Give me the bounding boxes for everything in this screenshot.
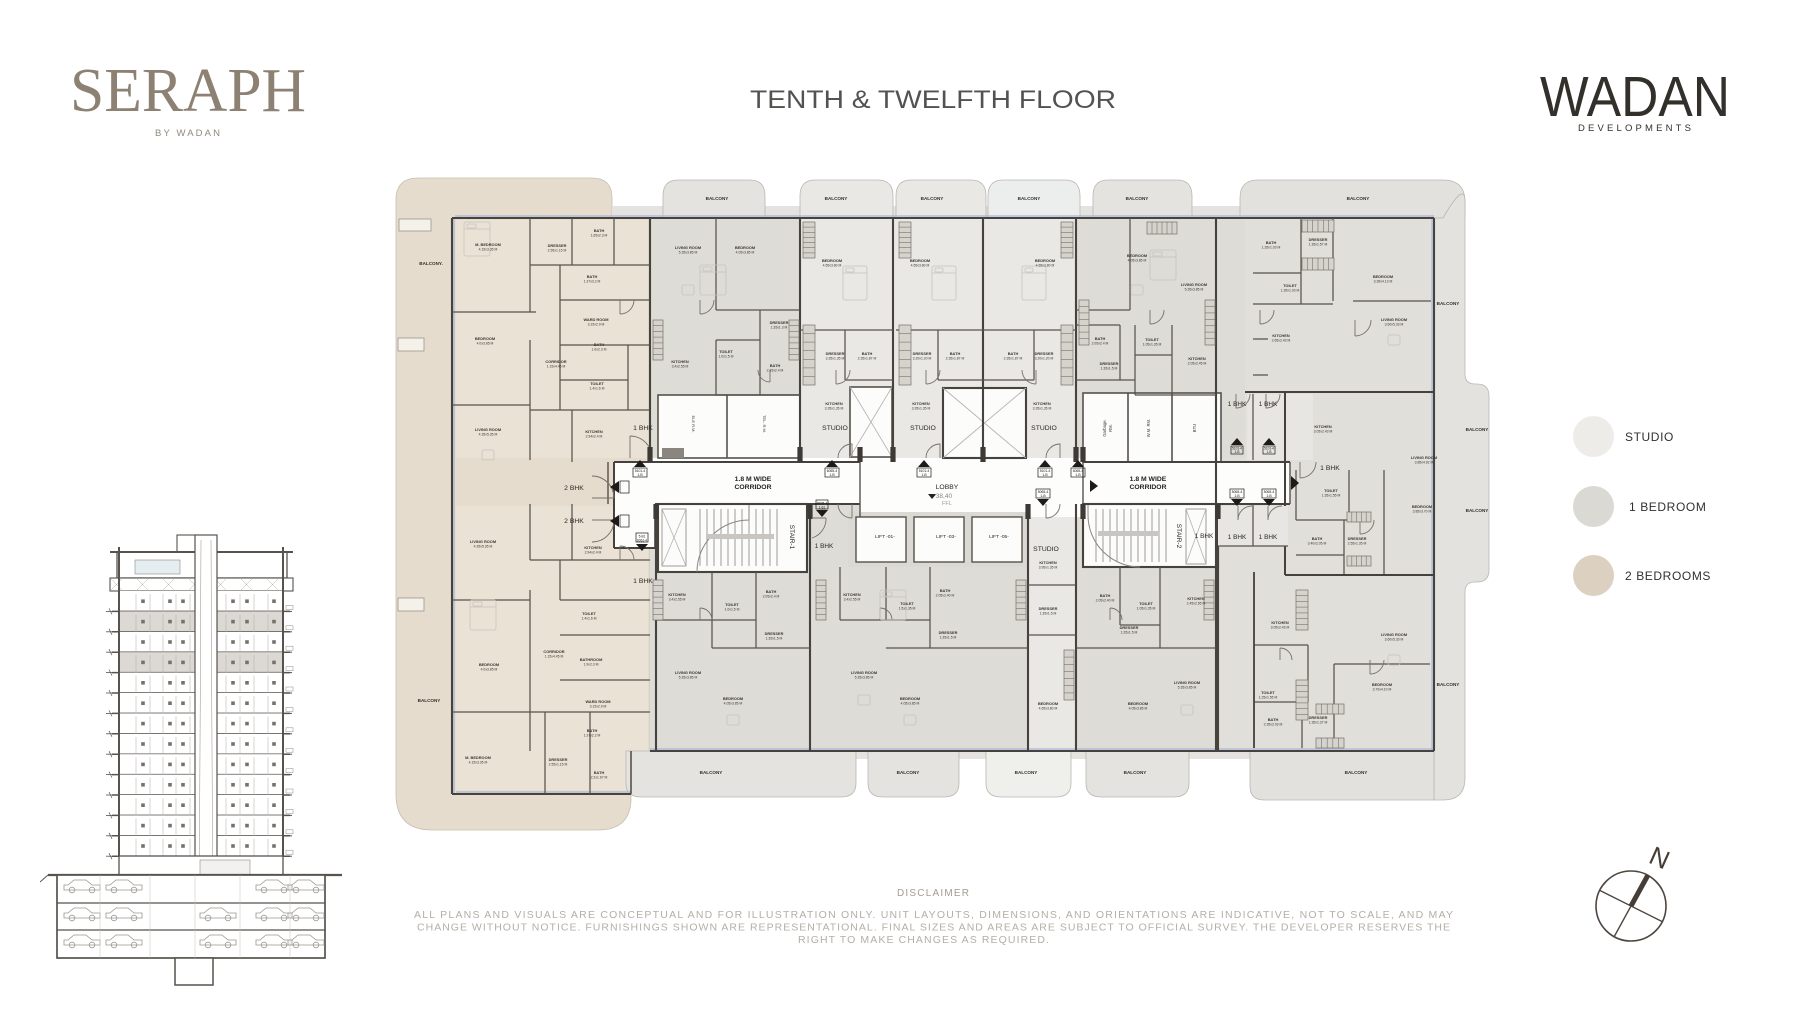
svg-text:STUDIO: STUDIO xyxy=(910,425,936,432)
svg-text:2.35x1.87 M: 2.35x1.87 M xyxy=(858,357,877,361)
svg-text:BATH: BATH xyxy=(594,228,605,233)
svg-text:2.05x2.4 M: 2.05x2.4 M xyxy=(1092,342,1109,346)
svg-text:BEDROOM: BEDROOM xyxy=(723,696,743,701)
svg-text:1-B: 1-B xyxy=(1040,494,1046,498)
svg-text:1.35x1.5 M: 1.35x1.5 M xyxy=(1040,612,1057,616)
svg-text:1-B: 1-B xyxy=(1042,473,1048,477)
svg-text:1-B: 1-B xyxy=(1267,450,1272,454)
svg-text:1-B: 1-B xyxy=(829,473,835,477)
svg-text:4.65x3.80 M: 4.65x3.80 M xyxy=(1036,264,1055,268)
svg-text:BATH: BATH xyxy=(1095,336,1106,341)
svg-text:BALCONY: BALCONY xyxy=(897,770,920,775)
svg-text:BALCONY: BALCONY xyxy=(1466,508,1489,513)
svg-text:3.15x2.9 M: 3.15x2.9 M xyxy=(588,323,605,327)
svg-text:KITCHEN: KITCHEN xyxy=(671,359,688,364)
svg-text:BATH: BATH xyxy=(862,351,873,356)
svg-text:WARD ROOM: WARD ROOM xyxy=(583,317,608,322)
svg-text:LIVING ROOM: LIVING ROOM xyxy=(675,245,701,250)
svg-text:2.2x1.67 M: 2.2x1.67 M xyxy=(591,776,608,780)
svg-text:3.70x4.10 M: 3.70x4.10 M xyxy=(1373,688,1392,692)
svg-text:Garbage.: Garbage. xyxy=(1102,419,1107,436)
svg-text:1 BHK: 1 BHK xyxy=(1228,401,1247,408)
svg-text:BATH: BATH xyxy=(594,342,605,347)
svg-text:TEL. R.M.: TEL. R.M. xyxy=(762,415,767,433)
svg-text:3.35x1.35 M: 3.35x1.35 M xyxy=(912,407,931,411)
svg-text:BALCONY: BALCONY xyxy=(1345,770,1368,775)
svg-text:LIVING ROOM: LIVING ROOM xyxy=(475,427,501,432)
svg-text:1 BHK: 1 BHK xyxy=(1320,465,1340,472)
svg-text:KITCHEN: KITCHEN xyxy=(1188,356,1205,361)
svg-text:BATHROOM: BATHROOM xyxy=(580,657,603,662)
svg-text:LOBBY: LOBBY xyxy=(936,484,959,491)
svg-text:BALCONY: BALCONY xyxy=(1466,427,1489,432)
svg-text:DRESSER: DRESSER xyxy=(1120,625,1139,630)
svg-text:5.35x3.85 M: 5.35x3.85 M xyxy=(679,676,698,680)
svg-text:BALCONY: BALCONY xyxy=(700,770,723,775)
svg-text:1.05x1.35 M: 1.05x1.35 M xyxy=(1137,607,1156,611)
svg-text:1.65x2.3 M: 1.65x2.3 M xyxy=(591,234,608,238)
svg-text:4.65x3.80 M: 4.65x3.80 M xyxy=(911,264,930,268)
svg-text:BALCONY: BALCONY xyxy=(1018,196,1041,201)
svg-text:TOILET: TOILET xyxy=(1145,337,1159,342)
svg-text:BALCONY: BALCONY xyxy=(1015,770,1038,775)
svg-text:DRESSER: DRESSER xyxy=(770,320,789,325)
svg-text:BEDROOM: BEDROOM xyxy=(1035,258,1055,263)
svg-text:TOILET: TOILET xyxy=(1324,488,1338,493)
svg-text:BATH: BATH xyxy=(587,728,598,733)
svg-text:4.05x3.85 M: 4.05x3.85 M xyxy=(736,251,755,255)
svg-text:3.35x1.35 M: 3.35x1.35 M xyxy=(825,407,844,411)
svg-text:4.65x3.80 M: 4.65x3.80 M xyxy=(823,264,842,268)
svg-text:RM.: RM. xyxy=(1108,424,1113,432)
svg-text:KITCHEN: KITCHEN xyxy=(1033,401,1050,406)
svg-text:BATH: BATH xyxy=(766,589,777,594)
svg-text:BATH: BATH xyxy=(587,274,598,279)
svg-text:TOILET: TOILET xyxy=(719,349,733,354)
svg-text:3.60x5.33 M: 3.60x5.33 M xyxy=(1385,323,1404,327)
svg-text:3.15x2.9 M: 3.15x2.9 M xyxy=(590,705,607,709)
svg-text:DRESSER: DRESSER xyxy=(1348,536,1367,541)
svg-text:CORRIDOR: CORRIDOR xyxy=(734,484,771,491)
svg-text:4.05x3.85 M: 4.05x3.85 M xyxy=(1128,259,1147,263)
svg-text:1-B: 1-B xyxy=(1235,450,1240,454)
svg-text:BEDROOM: BEDROOM xyxy=(1372,682,1392,687)
svg-text:ELE R.M.: ELE R.M. xyxy=(691,415,696,432)
svg-text:BATH: BATH xyxy=(940,588,951,593)
svg-text:BATH: BATH xyxy=(1008,351,1019,356)
svg-text:BALCONY: BALCONY xyxy=(1347,196,1370,201)
svg-text:1-B: 1-B xyxy=(1234,494,1240,498)
svg-text:STUDIO: STUDIO xyxy=(1033,546,1059,553)
svg-text:TOILET: TOILET xyxy=(582,611,596,616)
svg-text:2.05x2.40 M: 2.05x2.40 M xyxy=(936,594,955,598)
svg-text:1 BHK: 1 BHK xyxy=(1195,533,1214,540)
svg-text:DRESSER: DRESSER xyxy=(549,757,568,762)
svg-text:1 BHK: 1 BHK xyxy=(633,425,653,432)
svg-text:DRESSER: DRESSER xyxy=(1309,715,1328,720)
svg-text:BEDROOM: BEDROOM xyxy=(910,258,930,263)
svg-text:1-B: 1-B xyxy=(637,473,643,477)
svg-text:M. BEDROOM: M. BEDROOM xyxy=(475,242,501,247)
svg-text:KITCHEN: KITCHEN xyxy=(1271,620,1288,625)
svg-text:2.55x1.15 M: 2.55x1.15 M xyxy=(548,249,567,253)
svg-text:KITCHEN: KITCHEN xyxy=(584,545,601,550)
svg-text:BALCONY: BALCONY xyxy=(1124,770,1147,775)
svg-text:BEDROOM: BEDROOM xyxy=(1127,253,1147,258)
svg-text:2.05x2.40 M: 2.05x2.40 M xyxy=(1096,599,1115,603)
svg-text:CORRIDOR: CORRIDOR xyxy=(543,649,564,654)
svg-text:3.05x2.43 M: 3.05x2.43 M xyxy=(1271,626,1290,630)
svg-text:3.20x1.20 M: 3.20x1.20 M xyxy=(1035,357,1054,361)
svg-text:STUDIO: STUDIO xyxy=(822,425,848,432)
svg-text:TOILET: TOILET xyxy=(900,601,914,606)
svg-text:4.65x3.80 M: 4.65x3.80 M xyxy=(1039,707,1058,711)
svg-text:DRESSER: DRESSER xyxy=(1100,361,1119,366)
svg-text:KITCHEN: KITCHEN xyxy=(825,401,842,406)
svg-text:4.35x5.35 M: 4.35x5.35 M xyxy=(474,545,493,549)
svg-text:BATH: BATH xyxy=(770,363,781,368)
svg-text:1-B: 1-B xyxy=(1075,473,1081,477)
svg-text:W.M. RM.: W.M. RM. xyxy=(1146,419,1151,437)
svg-text:BATH: BATH xyxy=(950,351,961,356)
svg-text:1.35x1.5 M: 1.35x1.5 M xyxy=(940,636,957,640)
svg-text:DRESSER: DRESSER xyxy=(765,631,784,636)
svg-text:BEDROOM: BEDROOM xyxy=(822,258,842,263)
svg-text:KITCHEN: KITCHEN xyxy=(1272,333,1289,338)
svg-text:1.35x1.3 M: 1.35x1.3 M xyxy=(771,326,788,330)
svg-text:1.35x1.03 M: 1.35x1.03 M xyxy=(1281,289,1300,293)
svg-text:3.35x1.35 M: 3.35x1.35 M xyxy=(1033,407,1052,411)
svg-text:2.35x2.03 M: 2.35x2.03 M xyxy=(1264,723,1283,727)
svg-text:3.20x1.20 M: 3.20x1.20 M xyxy=(913,357,932,361)
svg-text:DRESSER: DRESSER xyxy=(939,630,958,635)
svg-text:1.35x1.5 M: 1.35x1.5 M xyxy=(1121,631,1138,635)
svg-text:4.0x3.85 M: 4.0x3.85 M xyxy=(477,342,494,346)
svg-text:1.4x1.6 M: 1.4x1.6 M xyxy=(590,387,605,391)
svg-text:1-B: 1-B xyxy=(921,473,927,477)
svg-text:4.05x3.85 M: 4.05x3.85 M xyxy=(724,702,743,706)
svg-text:DRESSER: DRESSER xyxy=(913,351,932,356)
svg-text:1.15x4.45 M: 1.15x4.45 M xyxy=(545,655,564,659)
svg-text:1.05x1.35 M: 1.05x1.35 M xyxy=(1143,343,1162,347)
svg-text:4.05x3.85 M: 4.05x3.85 M xyxy=(1129,707,1148,711)
svg-text:3.35x1.35 M: 3.35x1.35 M xyxy=(826,357,845,361)
svg-text:BATH: BATH xyxy=(1266,240,1277,245)
svg-text:5.35x3.85 M: 5.35x3.85 M xyxy=(1185,288,1204,292)
svg-text:BATH: BATH xyxy=(1268,717,1279,722)
svg-text:BEDROOM: BEDROOM xyxy=(1373,274,1393,279)
svg-text:BALCONY: BALCONY xyxy=(1437,301,1460,306)
svg-text:1.35x1.37 M: 1.35x1.37 M xyxy=(1309,721,1328,725)
svg-text:LIVING ROOM: LIVING ROOM xyxy=(470,539,496,544)
svg-text:1.15x4.45 M: 1.15x4.45 M xyxy=(547,365,566,369)
svg-text:KITCHEN: KITCHEN xyxy=(912,401,929,406)
svg-text:1.8 M WIDE: 1.8 M WIDE xyxy=(1130,476,1167,483)
svg-text:2.55x1.15 M: 2.55x1.15 M xyxy=(549,763,568,767)
svg-text:2.35x1.87 M: 2.35x1.87 M xyxy=(1004,357,1023,361)
svg-text:3.4x2.55 M: 3.4x2.55 M xyxy=(669,598,686,602)
svg-text:1.4x1.6 M: 1.4x1.6 M xyxy=(582,617,597,621)
svg-text:BALCONY: BALCONY xyxy=(418,698,441,703)
svg-text:1.8 M WIDE: 1.8 M WIDE xyxy=(735,476,772,483)
svg-text:TOILET: TOILET xyxy=(1261,690,1275,695)
svg-text:1.37x3.2 M: 1.37x3.2 M xyxy=(584,280,601,284)
svg-text:2 BHK: 2 BHK xyxy=(564,485,584,492)
svg-text:LIVING ROOM: LIVING ROOM xyxy=(1411,455,1437,460)
svg-text:1-61: 1-61 xyxy=(819,506,826,510)
svg-text:5.35x3.85 M: 5.35x3.85 M xyxy=(1178,686,1197,690)
svg-text:FFL: FFL xyxy=(942,501,952,507)
svg-text:WARD ROOM: WARD ROOM xyxy=(585,699,610,704)
svg-text:BALCONY: BALCONY xyxy=(921,196,944,201)
svg-text:2.55x1.35 M: 2.55x1.35 M xyxy=(1348,542,1367,546)
svg-text:1 BHK: 1 BHK xyxy=(815,543,834,550)
svg-text:1 BHK: 1 BHK xyxy=(633,578,653,585)
svg-text:1.35x1.5 M: 1.35x1.5 M xyxy=(766,637,783,641)
svg-text:TOILET: TOILET xyxy=(725,602,739,607)
svg-text:1.0x1.5 M: 1.0x1.5 M xyxy=(719,355,734,359)
svg-text:1.25x1.55 M: 1.25x1.55 M xyxy=(1259,696,1278,700)
svg-text:2.35x2.4 M: 2.35x2.4 M xyxy=(767,369,784,373)
svg-text:4.35x5.35 M: 4.35x5.35 M xyxy=(479,433,498,437)
svg-text:KITCHEN: KITCHEN xyxy=(668,592,685,597)
svg-text:BEDROOM: BEDROOM xyxy=(475,336,495,341)
svg-text:5.35x3.85 M: 5.35x3.85 M xyxy=(855,676,874,680)
svg-text:DRESSER: DRESSER xyxy=(1309,237,1328,242)
svg-text:CORRIDOR: CORRIDOR xyxy=(1129,484,1166,491)
svg-text:4.05x3.85 M: 4.05x3.85 M xyxy=(901,702,920,706)
svg-text:BATH: BATH xyxy=(1100,593,1111,598)
svg-text:3.4x2.55 M: 3.4x2.55 M xyxy=(672,365,689,369)
svg-text:3.60x5.33 M: 3.60x5.33 M xyxy=(1385,638,1404,642)
svg-text:3.40x2.05 M: 3.40x2.05 M xyxy=(1308,542,1327,546)
svg-text:BATH: BATH xyxy=(594,770,605,775)
svg-text:1.37x2.2 M: 1.37x2.2 M xyxy=(584,734,601,738)
svg-text:2.94x2.4 M: 2.94x2.4 M xyxy=(586,435,603,439)
svg-text:BEDROOM: BEDROOM xyxy=(900,696,920,701)
svg-text:3.85x4.92 M: 3.85x4.92 M xyxy=(1415,461,1434,465)
svg-text:3.4x2.55 M: 3.4x2.55 M xyxy=(844,598,861,602)
svg-text:BEDROOM: BEDROOM xyxy=(1128,701,1148,706)
svg-text:1 BHK: 1 BHK xyxy=(1228,534,1247,541)
svg-text:4.0x3.85 M: 4.0x3.85 M xyxy=(481,668,498,672)
svg-text:BEDROOM: BEDROOM xyxy=(1412,504,1432,509)
svg-text:KITCHEN: KITCHEN xyxy=(585,429,602,434)
svg-text:1.35x1.03 M: 1.35x1.03 M xyxy=(1262,246,1281,250)
svg-text:BALCONY.: BALCONY. xyxy=(419,261,442,266)
svg-text:TOILET: TOILET xyxy=(1139,601,1153,606)
svg-text:TOILET: TOILET xyxy=(1283,283,1297,288)
svg-text:1.35x1.55 M: 1.35x1.55 M xyxy=(1322,494,1341,498)
svg-text:3.95x1.35 M: 3.95x1.35 M xyxy=(1039,566,1058,570)
svg-text:DRESSER: DRESSER xyxy=(826,351,845,356)
svg-text:TOILET: TOILET xyxy=(590,381,604,386)
svg-text:3.05x2.43 M: 3.05x2.43 M xyxy=(1314,430,1333,434)
svg-text:KITCHEN: KITCHEN xyxy=(1039,560,1056,565)
svg-text:1.5x1.35 M: 1.5x1.35 M xyxy=(899,607,916,611)
svg-text:4.15x3.35 M: 4.15x3.35 M xyxy=(479,248,498,252)
svg-text:6061-4: 6061-4 xyxy=(637,539,647,543)
svg-text:BEDROOM: BEDROOM xyxy=(479,662,499,667)
svg-text:1 BHK: 1 BHK xyxy=(1259,401,1278,408)
svg-text:LIVING ROOM: LIVING ROOM xyxy=(675,670,701,675)
svg-text:STUDIO: STUDIO xyxy=(1031,425,1057,432)
svg-text:BATH: BATH xyxy=(1312,536,1323,541)
svg-text:BEDROOM: BEDROOM xyxy=(1038,701,1058,706)
svg-text:2.05x2.45 M: 2.05x2.45 M xyxy=(1188,362,1207,366)
svg-text:KITCHEN: KITCHEN xyxy=(1187,596,1204,601)
svg-text:LIVING ROOM: LIVING ROOM xyxy=(851,670,877,675)
svg-text:1 BHK: 1 BHK xyxy=(1259,534,1278,541)
svg-text:BALCONY: BALCONY xyxy=(1126,196,1149,201)
svg-text:DRESSER: DRESSER xyxy=(1035,351,1054,356)
svg-text:3.85x3.70 M: 3.85x3.70 M xyxy=(1413,510,1432,514)
svg-text:DRESSER: DRESSER xyxy=(548,243,567,248)
svg-text:4.15x3.35 M: 4.15x3.35 M xyxy=(469,761,488,765)
svg-text:BTU: BTU xyxy=(1192,424,1197,432)
svg-text:5.35x3.85 M: 5.35x3.85 M xyxy=(679,251,698,255)
svg-text:2.65x2.43 M: 2.65x2.43 M xyxy=(1272,339,1291,343)
svg-text:M. BEDROOM: M. BEDROOM xyxy=(465,755,491,760)
svg-text:DRESSER: DRESSER xyxy=(1039,606,1058,611)
svg-text:STAIR-1: STAIR-1 xyxy=(788,525,795,550)
svg-text:LIFT -05-: LIFT -05- xyxy=(989,534,1009,540)
svg-text:1.0x1.5 M: 1.0x1.5 M xyxy=(725,608,740,612)
svg-text:1.9x2.3 M: 1.9x2.3 M xyxy=(584,663,599,667)
svg-text:3.35x4.13 M: 3.35x4.13 M xyxy=(1374,280,1393,284)
svg-text:1-B: 1-B xyxy=(1266,494,1272,498)
svg-text:LIVING ROOM: LIVING ROOM xyxy=(1381,317,1407,322)
svg-text:KITCHEN: KITCHEN xyxy=(843,592,860,597)
svg-text:LIVING ROOM: LIVING ROOM xyxy=(1174,680,1200,685)
svg-text:2.35x1.87 M: 2.35x1.87 M xyxy=(946,357,965,361)
svg-text:BALCONY: BALCONY xyxy=(825,196,848,201)
svg-text:BEDROOM: BEDROOM xyxy=(735,245,755,250)
svg-text:STAIR-2: STAIR-2 xyxy=(1175,524,1182,549)
svg-text:LIFT -03-: LIFT -03- xyxy=(936,534,956,540)
svg-text:2.05x2.4 M: 2.05x2.4 M xyxy=(763,595,780,599)
svg-text:2.94x2.4 M: 2.94x2.4 M xyxy=(585,551,602,555)
svg-text:1.35x1.57 M: 1.35x1.57 M xyxy=(1309,243,1328,247)
svg-text:LIFT -01-: LIFT -01- xyxy=(875,534,895,540)
svg-text:BALCONY: BALCONY xyxy=(706,196,729,201)
svg-text:BALCONY: BALCONY xyxy=(1437,682,1460,687)
svg-text:2.45x2.55 M: 2.45x2.55 M xyxy=(1187,602,1206,606)
svg-text:CORRIDOR: CORRIDOR xyxy=(545,359,566,364)
svg-text:1.35x1.5 M: 1.35x1.5 M xyxy=(1101,367,1118,371)
svg-text:LIVING ROOM: LIVING ROOM xyxy=(1181,282,1207,287)
svg-text:2 BHK: 2 BHK xyxy=(564,518,584,525)
svg-text:LIVING ROOM: LIVING ROOM xyxy=(1381,632,1407,637)
svg-text:KITCHEN: KITCHEN xyxy=(1314,424,1331,429)
svg-text:1.6x2.3 M: 1.6x2.3 M xyxy=(592,348,607,352)
